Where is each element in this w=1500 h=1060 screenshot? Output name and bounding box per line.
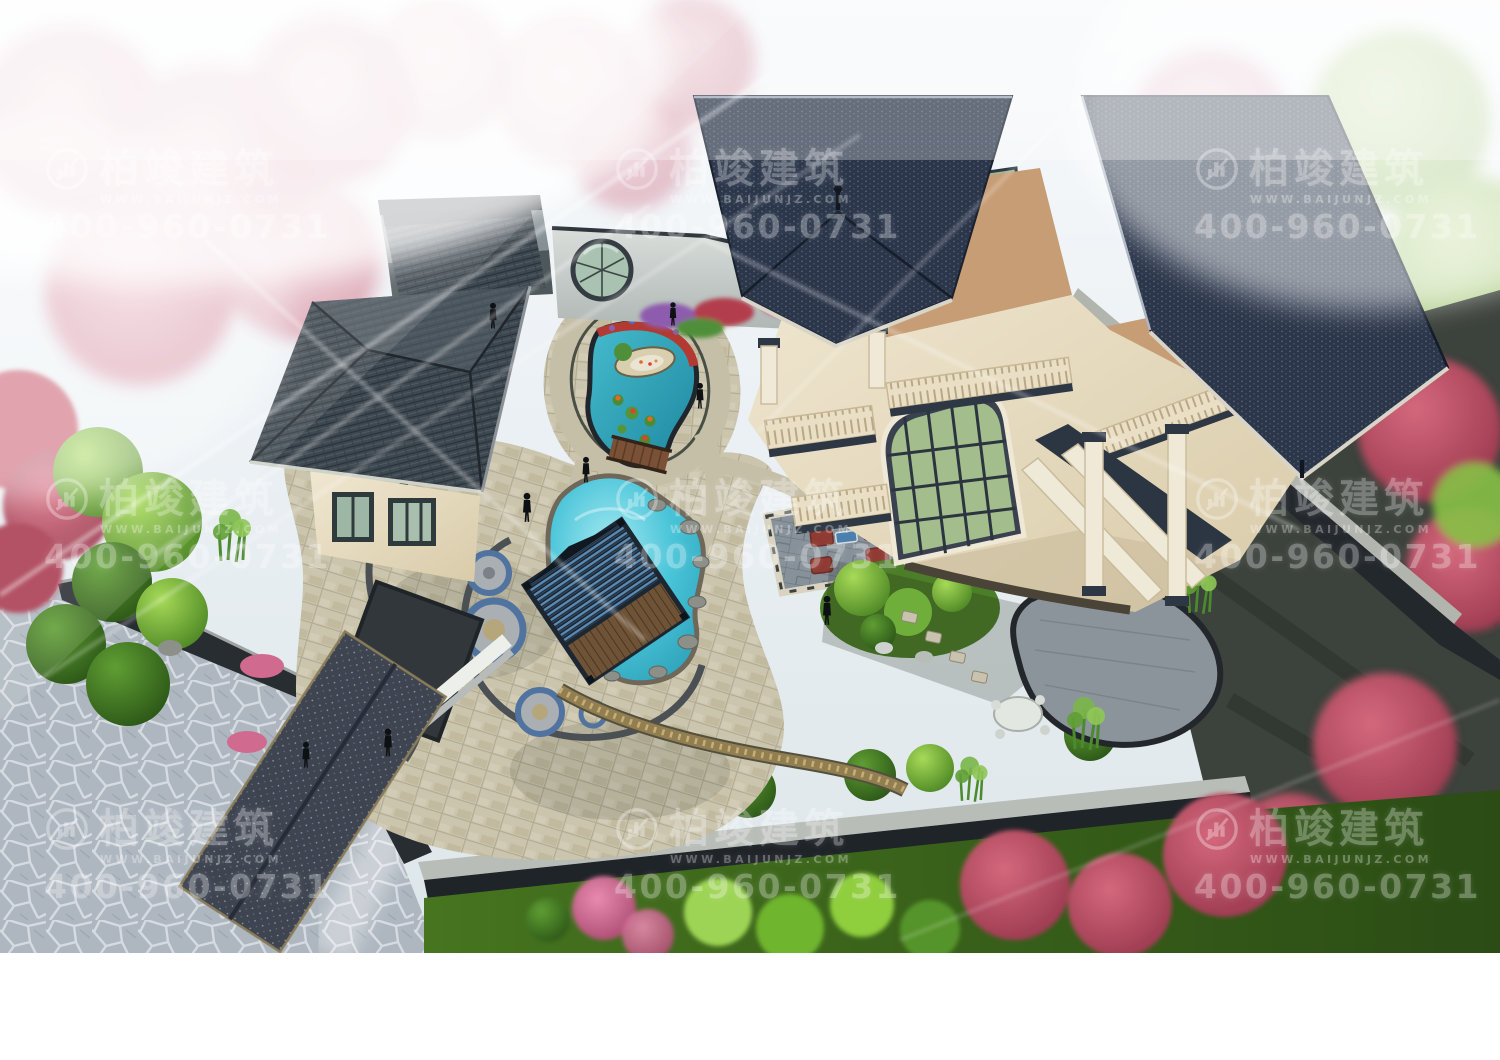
- patio-table: [835, 530, 857, 543]
- stone-table: [994, 697, 1042, 731]
- arched-window: [877, 390, 1025, 563]
- rendering-page: 柏竣建筑 WWW.BAIJUNJZ.COM 400-960-0731 柏竣建筑 …: [0, 0, 1500, 1060]
- rendering-scene: [0, 0, 1500, 953]
